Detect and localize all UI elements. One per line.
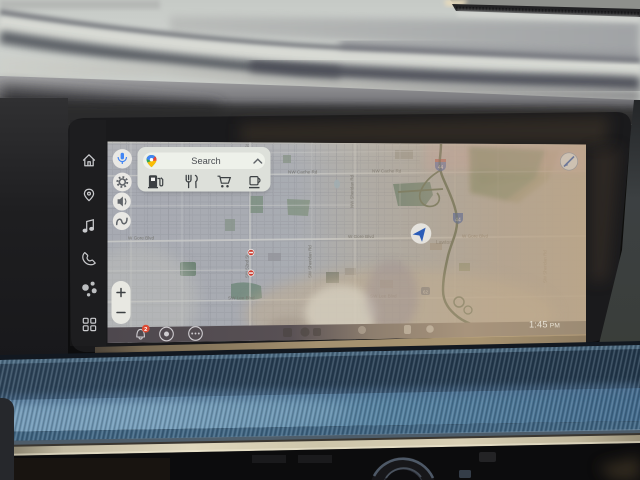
svg-text:SW Lee Blvd: SW Lee Blvd [228,296,255,301]
svg-text:W Gore Blvd: W Gore Blvd [128,236,154,241]
svg-text:Search: Search [191,156,220,166]
svg-text:2: 2 [144,327,147,333]
